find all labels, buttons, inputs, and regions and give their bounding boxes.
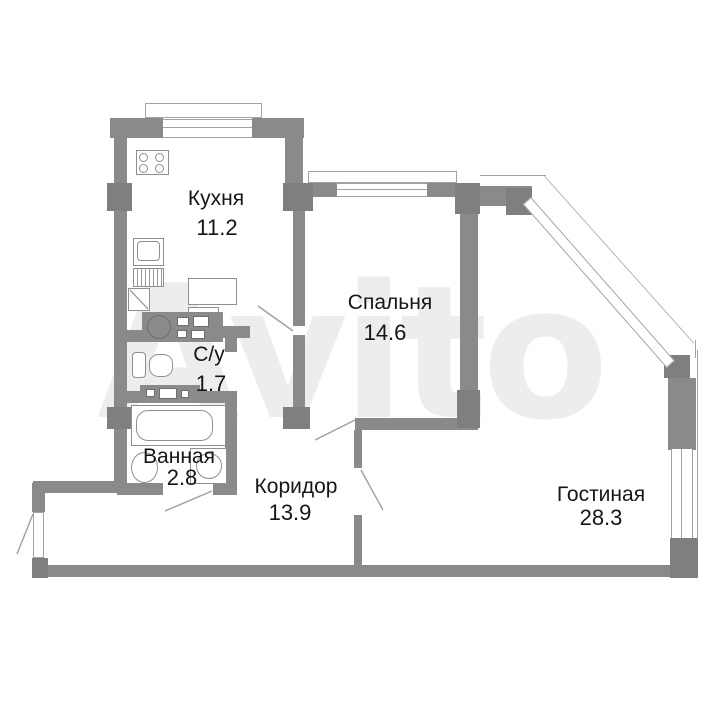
room-area-kitchen: 11.2	[196, 215, 237, 241]
room-label-kitchen: Кухня	[188, 187, 244, 211]
floor-plan: Avito	[0, 0, 720, 720]
bathroom-door-swing	[165, 491, 212, 511]
door-swing-lines	[0, 0, 720, 720]
bedroom-door-swing	[315, 420, 355, 440]
corner-cabinet-diagonal	[130, 290, 148, 309]
room-label-living: Гостиная	[557, 483, 645, 507]
room-area-living: 28.3	[580, 505, 623, 531]
room-label-corridor: Коридор	[255, 475, 338, 499]
living-door-swing	[361, 470, 383, 510]
kitchen-door-swing	[258, 306, 293, 331]
room-area-toilet: 1.7	[196, 371, 227, 397]
room-area-corridor: 13.9	[269, 500, 312, 526]
room-area-bedroom: 14.6	[364, 320, 407, 346]
room-label-bedroom: Спальня	[348, 291, 432, 315]
room-area-bathroom: 2.8	[167, 465, 198, 491]
room-label-toilet: С/у	[193, 343, 225, 367]
entrance-door-swing	[17, 514, 33, 554]
